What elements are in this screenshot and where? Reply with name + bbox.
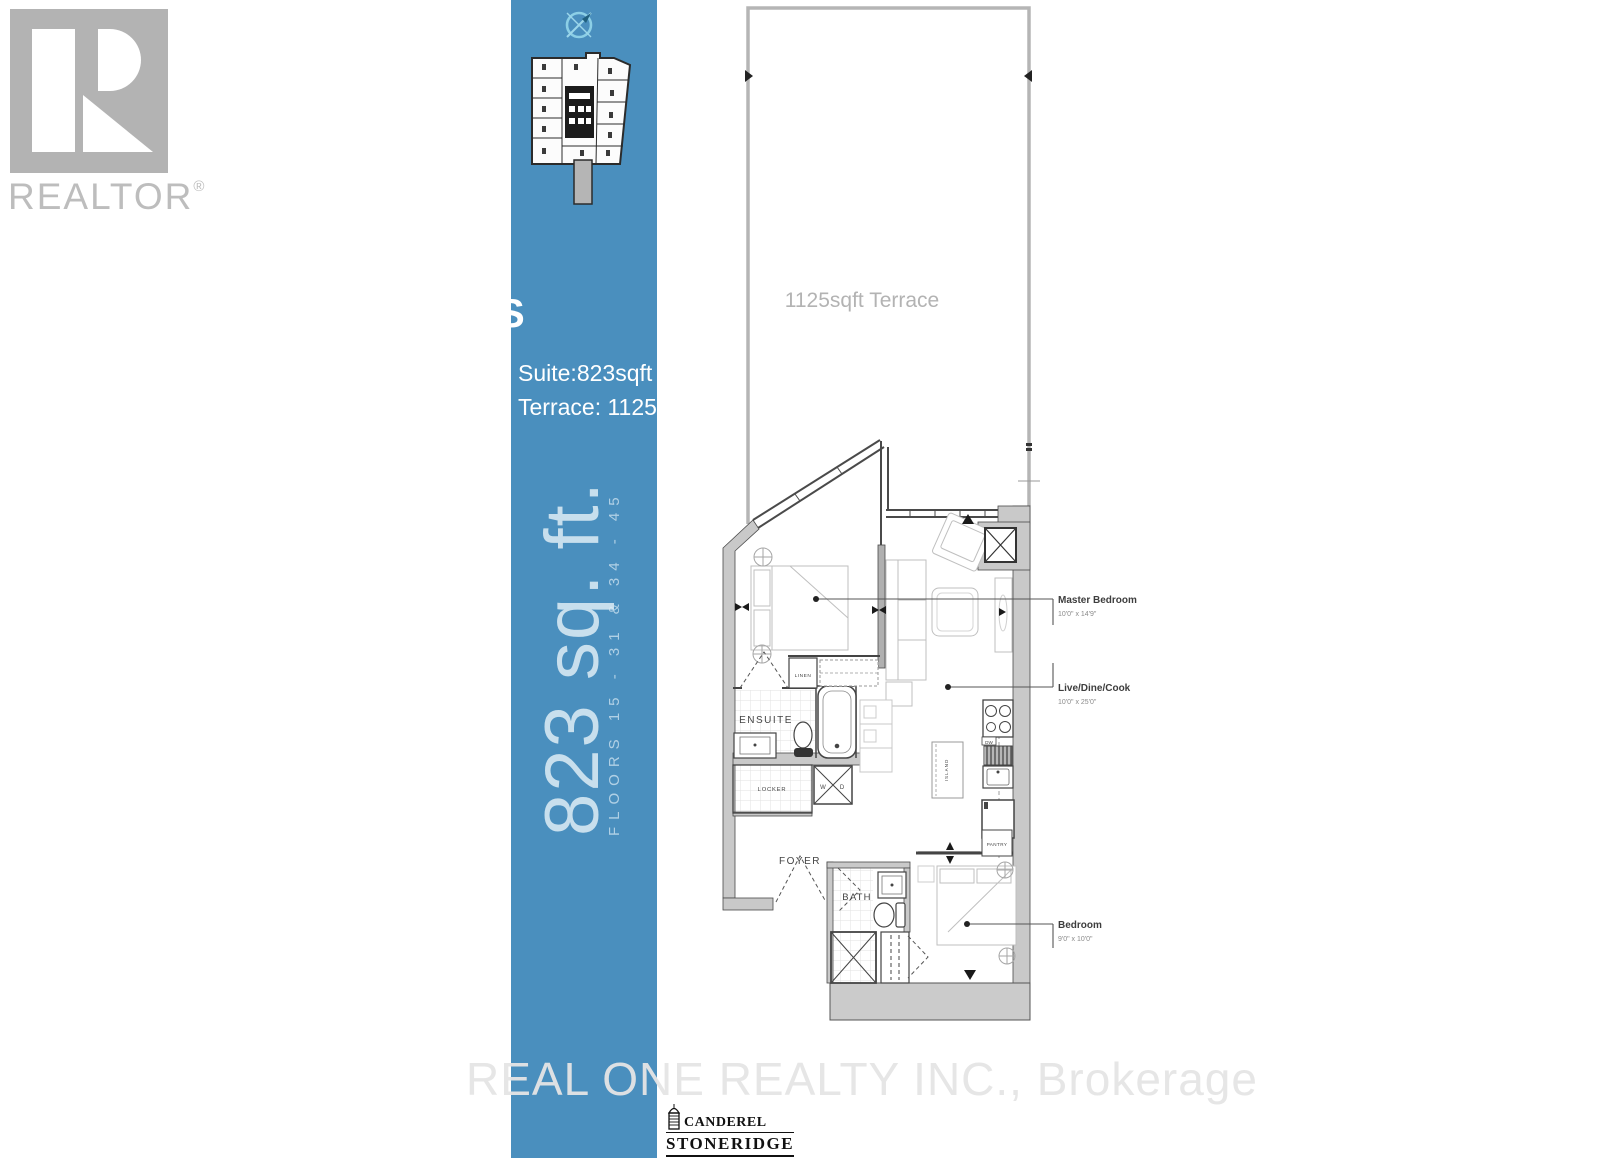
canderel-tower-icon <box>666 1104 682 1131</box>
ensuite-label: ENSUITE <box>739 715 793 726</box>
shaft <box>985 528 1016 562</box>
floorplan-drawing: 1125sqft Terrace <box>690 0 1250 1040</box>
pantry-label: PANTRY <box>987 842 1008 847</box>
washer-label: W <box>820 785 826 791</box>
bedroom-name: Bedroom <box>1058 920 1102 931</box>
realtor-logo-text: REALTOR® <box>8 176 206 218</box>
livedine-name: Live/Dine/Cook <box>1058 683 1131 694</box>
dryer-label: D <box>840 785 845 791</box>
terrace-label: 1125sqft Terrace <box>785 289 940 312</box>
developer-logo: CANDEREL STONERIDGE <box>666 1104 794 1157</box>
island-label: ISLAND <box>944 759 949 782</box>
area-summary: Suite:823sqft Terrace: 1125sqft <box>518 356 694 424</box>
terrace-outline: 1125sqft Terrace <box>745 8 1040 524</box>
developer-name-line1: CANDEREL <box>684 1115 767 1131</box>
building-keyplan <box>526 46 638 206</box>
foyer-label: FOYER <box>779 856 821 867</box>
master-bedroom-dims: 10'0" x 14'9" <box>1058 611 1097 618</box>
floors-vertical-text: FLOORS 15 - 31 & 34 - 45 <box>606 490 623 836</box>
stray-letter: S <box>498 292 525 337</box>
locker-label: LOCKER <box>758 787 787 793</box>
terrace-area-text: Terrace: 1125sqft <box>518 390 694 424</box>
floorplan-page: { "colors": { "band_blue": "#4a8fbe", "w… <box>0 0 1600 1158</box>
suite-area-text: Suite:823sqft <box>518 356 694 390</box>
compass-icon <box>560 6 598 44</box>
suite-size-vertical-text: 823 sq. ft. <box>529 480 616 836</box>
room-callouts: Master Bedroom 10'0" x 14'9" Live/Dine/C… <box>1058 595 1137 943</box>
realtor-logo-icon <box>10 9 168 173</box>
realtor-word-text: REALTOR <box>8 176 193 217</box>
linen-label: LINEN <box>795 673 812 679</box>
dw-label: DW <box>985 740 993 745</box>
closets <box>789 658 878 688</box>
registered-mark: ® <box>193 178 206 195</box>
bath-label: BATH <box>842 892 871 903</box>
master-bedroom-name: Master Bedroom <box>1058 595 1137 606</box>
brokerage-watermark: REAL ONE REALTY INC., Brokerage <box>466 1052 1258 1106</box>
bedroom-dims: 9'0" x 10'0" <box>1058 936 1093 943</box>
developer-name-line2: STONERIDGE <box>666 1134 794 1157</box>
livedine-dims: 10'0" x 25'0" <box>1058 699 1097 706</box>
